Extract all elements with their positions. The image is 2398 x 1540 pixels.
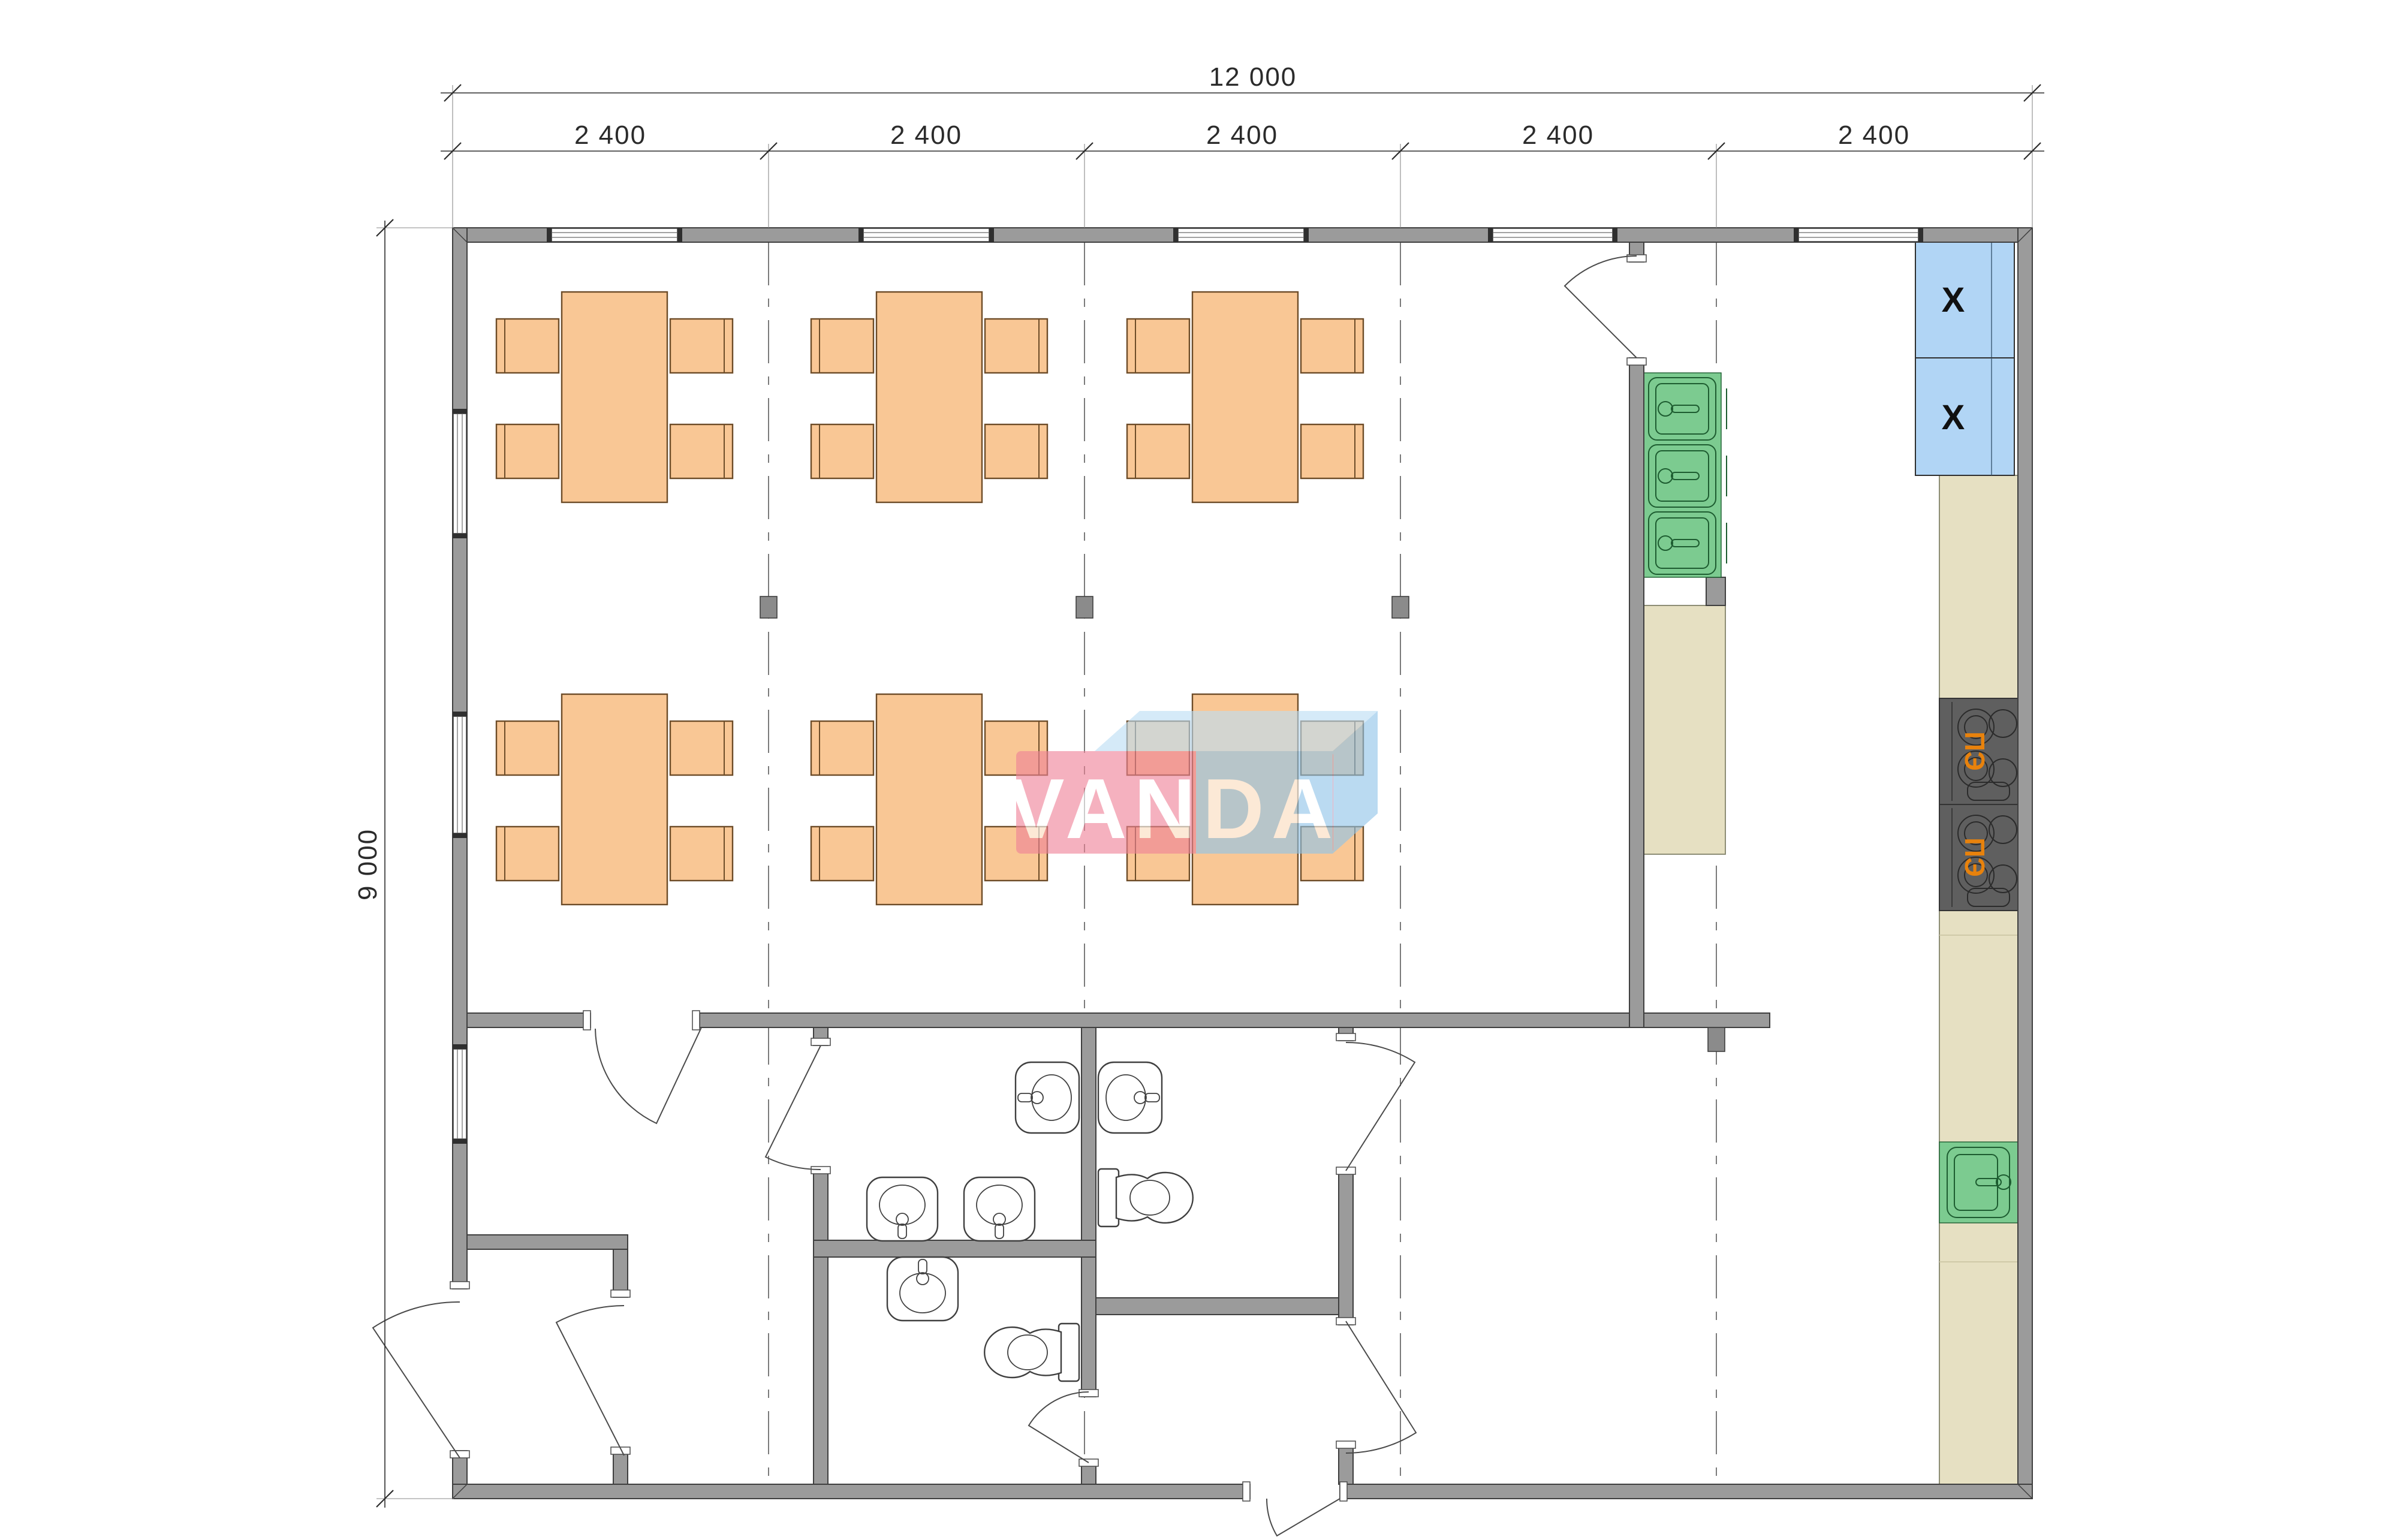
toilet-1 [1098, 1169, 1193, 1226]
toilet-2 [984, 1324, 1079, 1381]
dimension-overall-height: 9 000 [353, 219, 393, 1508]
door-washroom [766, 1045, 821, 1170]
dim-module-label: 2 400 [1838, 120, 1910, 150]
washbasin-2 [964, 1177, 1035, 1241]
stove-label: ПЭ [1959, 731, 1990, 771]
window-left-2 [453, 712, 467, 838]
dim-module-label: 2 400 [890, 120, 962, 150]
window-top-4 [1488, 228, 1617, 242]
wall-hall-north [1096, 1298, 1353, 1315]
floor-plan-sheet: X X ПЭ ПЭ [0, 0, 2398, 1540]
door-wc [1346, 1042, 1415, 1171]
kitchen-area: X X ПЭ ПЭ [1637, 242, 2025, 1484]
door-kitchen [1565, 256, 1637, 358]
electric-stove-1: ПЭ [1939, 698, 2018, 804]
wall-wc-left [814, 1170, 828, 1484]
vanda-watermark: VANDA [1008, 711, 1378, 857]
wall-bottom-right [1340, 1484, 2032, 1499]
wall-vestibule-east-lower [613, 1451, 628, 1484]
refrigerator-2: X [1915, 358, 2014, 475]
dining-table-1 [496, 292, 733, 502]
window-top-5 [1794, 228, 1923, 242]
door-exterior-left [373, 1302, 460, 1458]
sanitary-fixtures [867, 1062, 1193, 1381]
door-washroom-lower [1029, 1392, 1089, 1463]
wall-wc-right-low [1339, 1445, 1353, 1484]
dim-module-label: 2 400 [574, 120, 646, 150]
door-dining-to-back [595, 1027, 701, 1123]
refrigerator-1: X [1915, 242, 2014, 358]
counter-sink [1939, 1142, 2025, 1223]
window-top-3 [1173, 228, 1309, 242]
right-counter [1939, 475, 2018, 1484]
dim-module-label: 2 400 [1206, 120, 1278, 150]
door-vestibule [556, 1306, 624, 1455]
wall-wc-right-mid [1339, 1171, 1353, 1325]
dining-table-3 [1127, 292, 1363, 502]
wall-dining-south-stub [1644, 1013, 1770, 1027]
wall-dining-south-main [700, 1013, 1655, 1027]
wall-vestibule-north [467, 1235, 628, 1249]
dim-overall-width-label: 12 000 [1209, 62, 1297, 92]
dining-table-2 [811, 292, 1047, 502]
dim-module-label: 2 400 [1522, 120, 1594, 150]
floor-plan-drawing: X X ПЭ ПЭ [0, 0, 2398, 1540]
wall-dining-south-left [467, 1013, 591, 1027]
kitchen-sink-unit [1637, 373, 1727, 577]
watermark-text: VANDA [1008, 761, 1340, 857]
dining-table-4 [496, 694, 733, 905]
window-top-1 [547, 228, 682, 242]
washbasin-1 [867, 1177, 938, 1241]
wall-kitchen-partition [1629, 358, 1644, 1027]
washbasin-5 [1098, 1062, 1162, 1133]
window-top-2 [858, 228, 994, 242]
window-left-1 [453, 409, 467, 538]
watermark-box-top [1095, 711, 1378, 751]
dimension-overall-width: 12 000 [441, 62, 2044, 101]
washbasin-3 [887, 1257, 958, 1321]
refrigerator-x-mark: X [1942, 281, 1965, 320]
dimension-modules: 2 400 2 400 2 400 2 400 2 400 [441, 120, 2044, 159]
electric-stove-2: ПЭ [1939, 804, 2018, 911]
wall-right [2018, 228, 2032, 1499]
washbasin-4 [1016, 1062, 1079, 1133]
door-main-entrance [1267, 1499, 1340, 1536]
stove-label: ПЭ [1959, 837, 1990, 877]
prep-counter [1644, 605, 1725, 854]
window-left-3 [453, 1044, 467, 1144]
door-hall-side [1346, 1321, 1416, 1453]
refrigerator-x-mark: X [1942, 398, 1965, 437]
wall-wc-center-upper [1081, 1027, 1096, 1397]
dim-overall-height-label: 9 000 [353, 828, 382, 900]
wall-washstand [814, 1240, 1096, 1257]
wall-bottom-left [453, 1484, 1250, 1499]
